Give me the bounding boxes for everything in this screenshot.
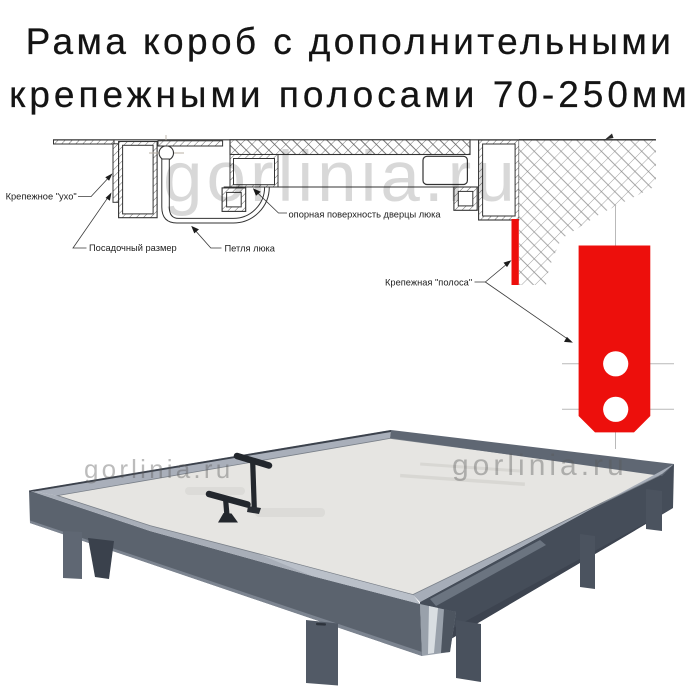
svg-text:gorlinia.ru: gorlinia.ru xyxy=(163,138,519,217)
svg-text:gorlinia.ru: gorlinia.ru xyxy=(84,454,233,484)
svg-text:Посадочный размер: Посадочный размер xyxy=(89,243,177,253)
svg-text:Крепежная "полоса": Крепежная "полоса" xyxy=(385,277,472,287)
svg-text:Крепежное "ухо": Крепежное "ухо" xyxy=(6,192,77,202)
svg-text:Петля люка: Петля люка xyxy=(225,244,276,254)
svg-text:gorlinia.ru: gorlinia.ru xyxy=(452,449,628,482)
